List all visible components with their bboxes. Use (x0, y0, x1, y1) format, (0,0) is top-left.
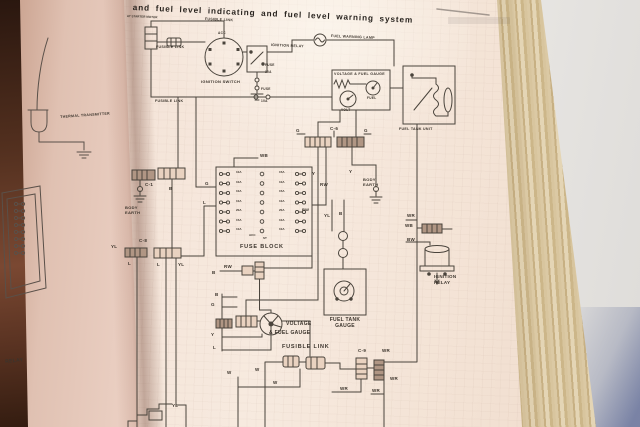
fuse-amp-l1: 10A (236, 171, 242, 175)
fuse-amp-label-1: 10A (265, 70, 272, 74)
fuse-amp-r7: 10A (279, 228, 285, 232)
diagram-labels-layer: and fuel level indicating and fuel level… (0, 0, 640, 427)
wire-label-y-1: Y (312, 171, 315, 177)
body-earth-label-left: BODY EARTH (125, 205, 140, 215)
connector-c1-label: C-1 (145, 182, 153, 188)
wire-label-b-2: B (339, 211, 343, 217)
photo-of-open-manual: and fuel level indicating and fuel level… (0, 0, 640, 427)
ignition-relay-label-top: IGNITION RELAY (271, 43, 304, 49)
at-starter-motor-label: AT STARTER MOTOR (127, 15, 158, 20)
wire-label-l-3: L (157, 262, 160, 268)
fuse-amp-r5: 20A (279, 209, 285, 213)
fuse-amp-l3: 10A (236, 190, 242, 194)
volt-gauge-label: VOLT (341, 108, 350, 112)
wire-label-b-4: B (215, 292, 219, 298)
fuse-amp-r4: 10A (279, 200, 285, 204)
wire-label-rw-2: RW (302, 207, 309, 212)
voltage-label-line2: & FUEL GAUGE (269, 330, 310, 336)
voltage-label-line1: VOLTAGE (286, 321, 312, 327)
relay-partial-label: RELAY (5, 357, 24, 365)
fuel-gauge-label: FUEL (367, 96, 377, 100)
fuse-amp-r2: 10A (279, 181, 285, 185)
fuse-amp-label-2: 10A (261, 99, 268, 103)
fuse-amp-r6: 10A (279, 219, 285, 223)
connector-c8-label: C-8 (139, 238, 147, 244)
wire-label-wr-1: WR (407, 213, 415, 219)
wire-label-g-2: G (364, 128, 368, 134)
wire-label-rw-1: RW (320, 182, 328, 188)
wire-label-y-3: Y (211, 332, 214, 338)
connector-c6-label: C-6 (330, 126, 338, 132)
fuse-amp-l4: 10A (236, 200, 242, 204)
wire-label-yl-3: YL (324, 213, 330, 219)
fuse-amp-l6: 15A (236, 219, 242, 223)
ignition-switch-label: IGNITION SWITCH (201, 79, 240, 84)
fusible-link-label-top: FUSIBLE LINK (205, 17, 234, 23)
wire-label-g-3: G (205, 181, 209, 187)
fusible-link-label-bottom: FUSIBLE LINK (282, 344, 330, 351)
ignition-relay-label-bottom: IGNITION RELAY (434, 274, 456, 285)
body-earth-label-right: BODY EARTH (363, 177, 378, 187)
wire-label-wr-3: WR (390, 376, 398, 382)
wire-label-l-2: L (128, 261, 131, 267)
wire-label-g-1: G (296, 128, 300, 134)
wire-label-b-3: B (212, 270, 216, 276)
wire-label-w-2: W (255, 367, 260, 373)
connector-c9-label: C-9 (358, 348, 366, 354)
wire-label-wr-2: WR (382, 348, 390, 354)
fuse-label-1: FUSE (265, 63, 275, 67)
fusible-link-label-battery: FUSIBLE LINK (156, 45, 184, 49)
wire-label-l-1: L (203, 200, 206, 206)
wire-label-wb-2: WB (405, 223, 413, 229)
fuse-block-label: FUSE BLOCK (240, 244, 284, 251)
fuel-tank-unit-label: FUEL TANK UNIT (399, 127, 433, 131)
wire-label-w-1: W (227, 370, 232, 376)
fuse-amp-l5: 20A (236, 209, 242, 213)
page-title: and fuel level indicating and fuel level… (133, 3, 414, 26)
wire-label-yl-2: YL (178, 262, 184, 268)
wire-label-wr-4: WR (372, 388, 380, 394)
wire-label-g-4: G (211, 302, 215, 308)
wire-label-l-4: L (213, 345, 216, 351)
wire-label-wr-5: WR (340, 386, 348, 392)
voltage-fuel-gauge-label-top: VOLTAGE & FUEL GAUGE (334, 72, 385, 76)
wire-label-wb-1: WB (260, 153, 268, 159)
fuel-warning-lamp-label: FUEL WARNING LAMP (331, 34, 375, 40)
wire-label-yl-1: YL (111, 244, 117, 250)
fuse-amp-r3: 15A (279, 190, 285, 194)
acc-terminal-label: ACC (218, 31, 226, 35)
fuse-amp-l7: 10A (236, 228, 242, 232)
wire-label-w-3: W (273, 380, 278, 386)
wire-label-yl-4: YL (172, 403, 178, 409)
wire-label-y-2: Y (349, 169, 352, 175)
fuse-st-label: ST (263, 237, 267, 241)
fusible-link-label-feed: FUSIBLE LINK (155, 99, 183, 103)
fuse-label-2: FUSE (261, 87, 271, 91)
fuel-tank-gauge-label: FUEL TANK GAUGE (322, 317, 368, 330)
fuse-amp-r1: 15A (279, 171, 285, 175)
thermal-transmitter-label: THERMAL TRANSMITTER (60, 112, 110, 120)
wire-label-bw-1: BW (407, 237, 415, 243)
wire-label-rw-3: RW (224, 264, 232, 270)
fuse-amp-l2: 10A (236, 181, 242, 185)
wire-label-b-1: B (169, 186, 173, 192)
fuse-acc-label: ACC (249, 234, 256, 238)
